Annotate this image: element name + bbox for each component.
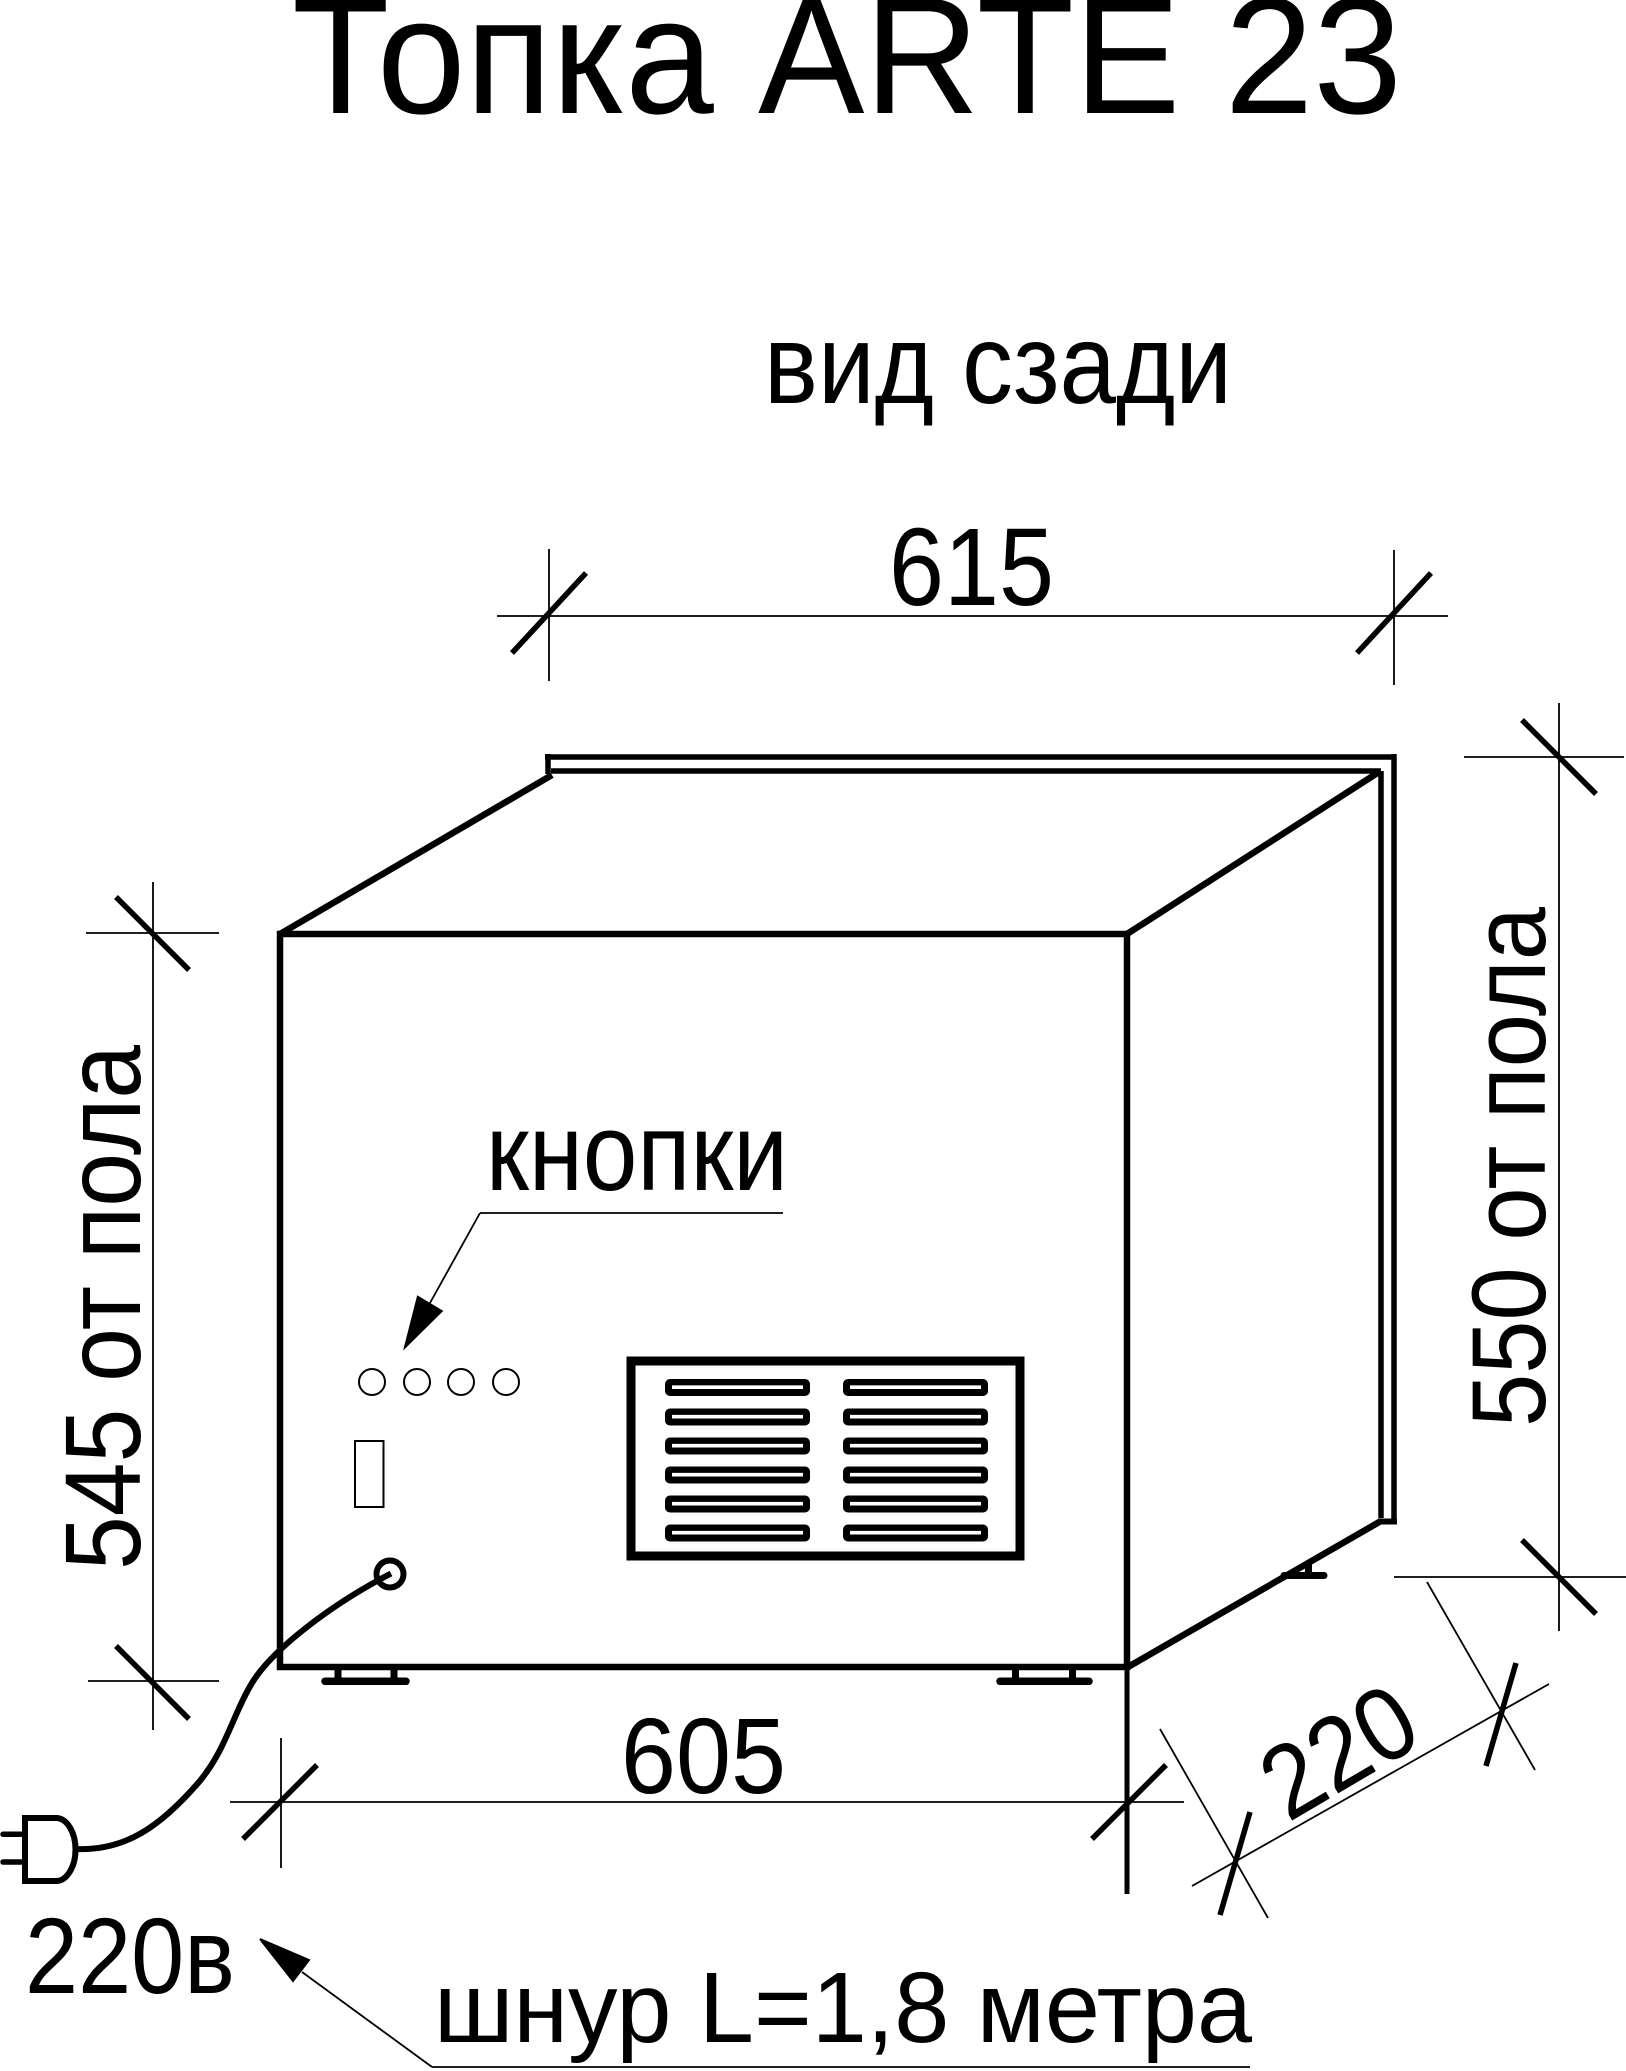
svg-text:кнопки: кнопки [486, 1091, 788, 1214]
svg-text:605: 605 [621, 1695, 786, 1816]
svg-text:545 от пола: 545 от пола [42, 1044, 163, 1570]
svg-text:615: 615 [889, 506, 1054, 629]
svg-text:550 от пола: 550 от пола [1451, 906, 1568, 1427]
svg-text:Топка ARTE 23: Топка ARTE 23 [292, 0, 1402, 149]
svg-text:шнур L=1,8 метра: шнур L=1,8 метра [434, 1952, 1252, 2064]
svg-text:220в: 220в [25, 1895, 235, 2016]
svg-text:вид сзади: вид сзади [764, 301, 1232, 427]
